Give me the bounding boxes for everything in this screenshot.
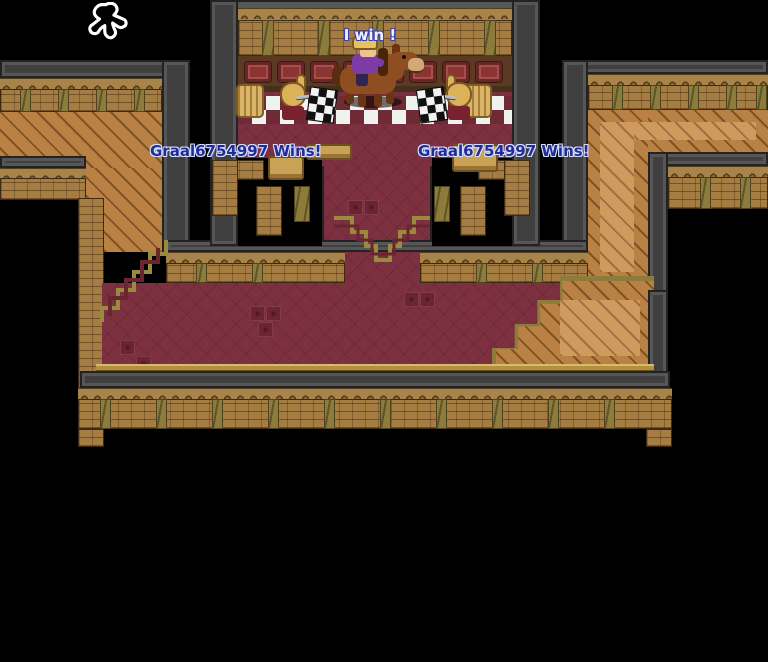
wall-column <box>100 399 111 429</box>
wall-column <box>740 177 751 209</box>
wall-column <box>492 399 503 429</box>
wall-column <box>434 186 450 222</box>
wall-column <box>436 399 447 429</box>
wall-brick-pillar <box>78 429 104 447</box>
speech-bubble: I win ! <box>310 26 430 44</box>
wall-arch-row <box>0 78 162 89</box>
wall-column <box>756 85 767 110</box>
wall-column <box>196 263 207 283</box>
wall-brick-band <box>0 178 86 200</box>
carpet-motif <box>266 306 281 321</box>
carpet-motif <box>120 340 135 355</box>
wall-panel <box>244 61 272 83</box>
npc-body <box>448 106 470 120</box>
npc-body <box>282 106 304 120</box>
wall-border <box>80 371 670 388</box>
wall-arch-row <box>588 74 768 85</box>
wall-arch-row <box>420 252 588 263</box>
wall-column <box>532 263 543 283</box>
wall-border <box>0 156 86 168</box>
floor-plank <box>600 122 634 272</box>
wall-column <box>20 89 31 112</box>
wall-column <box>324 399 335 429</box>
wall-column <box>688 85 699 110</box>
wall-arch-row <box>668 166 768 177</box>
wall-column <box>604 399 615 429</box>
game-viewport[interactable]: I win ! Graal6754997 Wins! Graal6754997 … <box>0 0 768 662</box>
wall-column <box>650 85 661 110</box>
wall-column <box>212 399 223 429</box>
win-announcement-left: Graal6754997 Wins! <box>150 142 322 160</box>
wall-column <box>252 263 263 283</box>
wall-column <box>548 399 559 429</box>
wall-brick-pillar <box>256 186 282 236</box>
greek-key-decor <box>98 238 168 324</box>
wall-brick-pillar <box>460 186 486 236</box>
wall-brick-band <box>668 177 768 209</box>
wall-column <box>380 399 391 429</box>
carpet-motif <box>250 306 265 321</box>
wall-column <box>700 177 711 209</box>
hay-bale-sprite <box>236 84 264 118</box>
wall-column <box>262 20 274 56</box>
wall-brick-pillar <box>646 429 672 447</box>
wall-arch-row <box>166 252 345 263</box>
wall-column <box>134 89 145 112</box>
wall-column <box>726 85 737 110</box>
horse-eye <box>402 55 406 59</box>
wall-brick-band <box>78 399 672 429</box>
wall-column <box>476 263 487 283</box>
wall-brick-pillar <box>212 160 238 216</box>
wall-arch-row <box>0 168 86 178</box>
wall-column <box>268 399 279 429</box>
wall-column <box>294 186 310 222</box>
carpet-motif <box>258 322 273 337</box>
rider-leg <box>356 72 368 86</box>
wall-panel <box>475 61 503 83</box>
wall-arch-row <box>78 388 672 399</box>
carpet-motif <box>404 292 419 307</box>
win-announcement-right: Graal6754997 Wins! <box>418 142 590 160</box>
greek-key-decor <box>332 212 432 268</box>
horse-muzzle <box>408 58 424 73</box>
carpet-motif <box>420 292 435 307</box>
player-riding-horse-sprite <box>330 34 440 112</box>
wall-arch-row <box>238 8 512 20</box>
floor-plank <box>560 300 640 356</box>
wall-column <box>612 85 623 110</box>
wall-column <box>96 89 107 112</box>
wall-column <box>156 399 167 429</box>
wall-border <box>562 60 768 74</box>
wall-column <box>484 20 496 56</box>
walking-person-outline-icon <box>86 2 134 44</box>
wall-column <box>58 89 69 112</box>
wall-brick-pillar <box>504 160 530 216</box>
